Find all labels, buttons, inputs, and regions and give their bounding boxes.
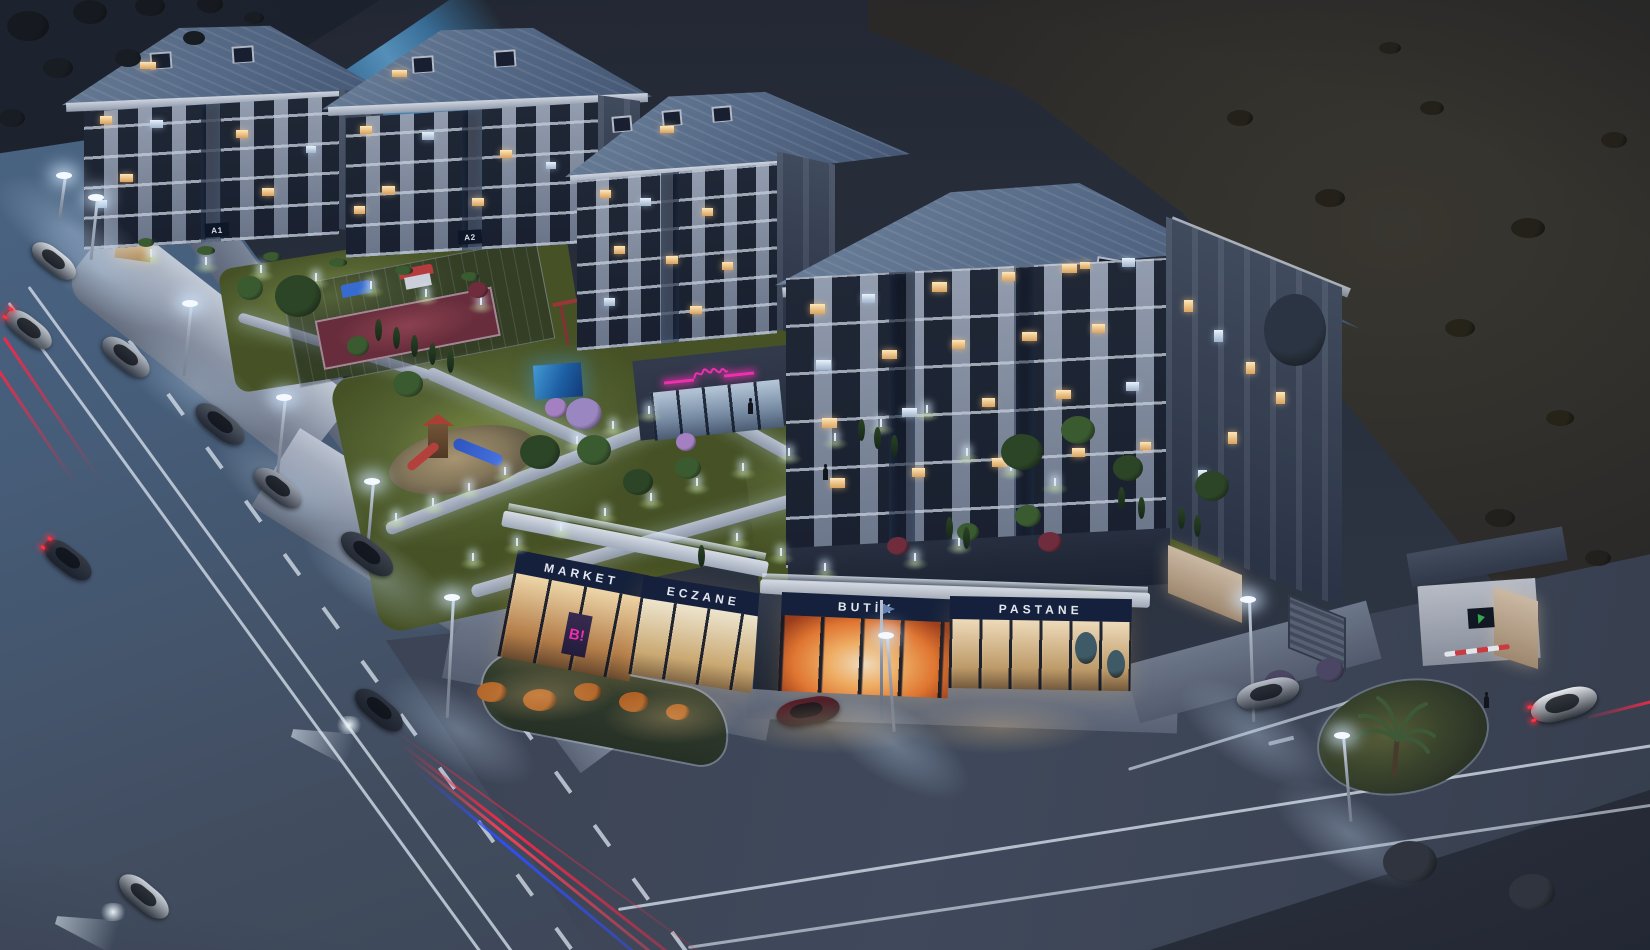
pastane-sign-text: PASTANE [999, 601, 1083, 616]
person [823, 468, 828, 480]
lit-window [262, 188, 274, 196]
tree [1264, 294, 1326, 366]
lit-window [1246, 362, 1255, 374]
bollard-pool [599, 426, 627, 438]
tree [197, 246, 215, 255]
tree [1445, 319, 1475, 337]
lit-window [472, 198, 484, 206]
shop-pastane: PASTANE [948, 596, 1132, 691]
dormer-window [661, 109, 682, 127]
bollard-pool [192, 262, 220, 274]
lit-window [690, 306, 702, 314]
lit-window [600, 190, 611, 198]
building-c-facade [786, 258, 1166, 568]
cypress-tree [393, 327, 400, 349]
tree [1316, 658, 1344, 682]
streetlight-lamp [182, 300, 198, 307]
tree [263, 252, 281, 261]
outdoor-screen [533, 362, 583, 399]
night-aerial-residential-render: A1 A2 MARKET B! [0, 0, 1650, 950]
bollard-pool [953, 453, 981, 465]
gate-green-mark [1477, 612, 1485, 624]
tree [1227, 110, 1253, 126]
dormer-window [493, 49, 516, 67]
bollard-pool [683, 483, 711, 495]
cypress-tree [1194, 515, 1201, 537]
tree [577, 435, 611, 465]
cypress-tree [1138, 497, 1145, 519]
dormer-window [611, 115, 632, 133]
tree [520, 435, 560, 469]
bollard-pool [811, 568, 839, 580]
lit-window [912, 468, 925, 477]
cypress-tree [858, 419, 865, 441]
bollard-pool [729, 468, 757, 480]
headlight-glow [334, 716, 364, 734]
tree [395, 266, 413, 275]
bollard-pool [412, 294, 440, 306]
lit-window [666, 256, 678, 264]
lit-window [236, 130, 248, 138]
cypress-tree [429, 343, 436, 365]
taillight [1531, 719, 1537, 723]
lit-window [932, 282, 947, 292]
tree [1195, 471, 1229, 501]
lit-window [306, 146, 316, 153]
lit-window [1184, 300, 1193, 312]
bollard-pool [1041, 483, 1069, 495]
bollard-pool [547, 528, 575, 540]
tree [1038, 532, 1062, 552]
streetlight-lamp [878, 632, 894, 639]
lit-window [830, 478, 845, 488]
shop-light-pool [900, 700, 1100, 754]
bollard-pool [491, 472, 519, 484]
streetlight-lamp [1240, 596, 1256, 603]
tree [1383, 841, 1437, 883]
person [748, 402, 753, 414]
poster-text: B! [568, 625, 587, 645]
bollard-pool [459, 558, 487, 570]
cypress-tree [411, 335, 418, 357]
tree [468, 282, 488, 298]
lit-window [360, 126, 372, 134]
lit-window [500, 150, 512, 158]
tree [1113, 455, 1143, 481]
bollard-pool [635, 411, 663, 423]
tree [1546, 410, 1574, 426]
entrance-label-a1: A1 [205, 222, 230, 237]
bollard-pool [419, 503, 447, 515]
cypress-tree [874, 427, 881, 449]
lit-window [982, 398, 995, 407]
headlight-glow [98, 903, 128, 921]
tree [545, 398, 567, 418]
bollard-pool [775, 453, 803, 465]
lit-window [1214, 330, 1223, 342]
lit-window [100, 116, 112, 124]
streetlight-lamp [364, 478, 380, 485]
tree [1061, 416, 1095, 444]
tree [1107, 650, 1125, 678]
shop-eczane: ECZANE [628, 575, 766, 693]
cypress-tree [375, 319, 382, 341]
streetlight-lamp [1334, 732, 1350, 739]
tree [1075, 632, 1097, 664]
bollard-pool [137, 254, 165, 266]
palm-tree [1352, 688, 1436, 780]
tree [329, 258, 347, 267]
tree [393, 371, 423, 397]
bollard-pool [382, 518, 410, 530]
lit-window [604, 298, 615, 306]
gate-lit-wall [1494, 587, 1538, 669]
cypress-tree [698, 545, 705, 567]
tree [43, 58, 73, 78]
cypress-tree [447, 351, 454, 373]
tree [183, 31, 205, 45]
lit-window [422, 132, 434, 140]
label-a2: A2 [464, 232, 476, 242]
lit-window [810, 304, 825, 314]
lit-window [660, 126, 674, 133]
tree [1509, 874, 1555, 910]
dormer-window [411, 55, 434, 73]
bollard-pool [723, 538, 751, 550]
stair-core [201, 103, 221, 242]
lit-window [1092, 324, 1105, 333]
tree [73, 0, 107, 24]
flag [883, 604, 895, 614]
lit-window [1072, 448, 1085, 457]
tree [1511, 218, 1545, 238]
lit-window [702, 208, 713, 216]
cypress-tree [1178, 507, 1185, 529]
cypress-tree [891, 435, 898, 457]
tree [887, 537, 909, 555]
lit-window [882, 350, 897, 359]
shop-window-pastane [948, 619, 1131, 691]
shop-light-pool [465, 668, 615, 722]
tree [7, 11, 49, 41]
streetlight-lamp [56, 172, 72, 179]
neon-script-sign [691, 362, 729, 384]
lit-window [816, 360, 831, 370]
bollard-pool [591, 513, 619, 525]
bollard-pool [637, 498, 665, 510]
tree [0, 109, 25, 127]
lit-window [140, 62, 156, 69]
lit-window [1080, 262, 1090, 269]
lit-window [150, 120, 163, 128]
tree [138, 238, 154, 247]
tree [1601, 132, 1627, 148]
tree [1585, 550, 1611, 566]
bollard-pool [821, 438, 849, 450]
bollard-pool [767, 553, 795, 565]
gate-brand-sign [1467, 607, 1494, 629]
tree [675, 457, 701, 479]
lit-window [1002, 272, 1015, 281]
lit-window [1126, 382, 1139, 391]
lit-window [1056, 390, 1071, 399]
lit-window [1228, 432, 1237, 444]
lit-window [354, 206, 365, 214]
tree [623, 469, 653, 495]
tree [115, 49, 141, 67]
label-a1: A1 [211, 225, 223, 235]
lit-window [822, 418, 837, 428]
cypress-tree [963, 527, 970, 549]
bollard-pool [913, 410, 941, 422]
lit-window [1140, 442, 1151, 450]
lit-window [722, 262, 733, 270]
bollard-pool [357, 286, 385, 298]
dormer-window [711, 105, 732, 123]
bollard-pool [867, 424, 895, 436]
tree [566, 398, 602, 430]
lit-window [1276, 392, 1285, 404]
lit-window [952, 340, 965, 349]
cypress-tree [946, 517, 953, 539]
tree [1315, 189, 1345, 207]
tree [347, 336, 369, 356]
bollard-pool [503, 543, 531, 555]
tree [1001, 434, 1043, 470]
tree [676, 433, 696, 451]
lit-window [1022, 332, 1037, 341]
lit-window [862, 294, 875, 303]
lit-window [1062, 264, 1077, 273]
dormer-window [231, 45, 254, 63]
window-poster: B! [561, 612, 593, 658]
lit-window [120, 174, 133, 182]
lit-window [382, 186, 395, 194]
streetlight-lamp [276, 394, 292, 401]
lit-window [546, 162, 556, 169]
person [1484, 696, 1489, 708]
tree [244, 12, 264, 24]
entrance-label-a2: A2 [458, 229, 483, 244]
shop-sign-pastane: PASTANE [950, 596, 1132, 622]
streetlight-lamp [444, 594, 460, 601]
lit-window [392, 70, 407, 77]
cypress-tree [1118, 487, 1125, 509]
bollard-pool [467, 302, 495, 314]
lit-window [614, 246, 625, 254]
shop-butik: BUTİK [778, 592, 952, 698]
bollard-pool [901, 558, 929, 570]
shop-light-pool [602, 690, 742, 744]
tree [1015, 505, 1041, 527]
tree [1420, 101, 1444, 115]
tree [237, 276, 263, 300]
tree [461, 272, 479, 281]
lit-window [1122, 258, 1135, 267]
tree [1379, 42, 1401, 54]
lit-window [640, 198, 651, 206]
tree [275, 275, 321, 317]
bollard-pool [455, 488, 483, 500]
tree [1485, 509, 1515, 527]
